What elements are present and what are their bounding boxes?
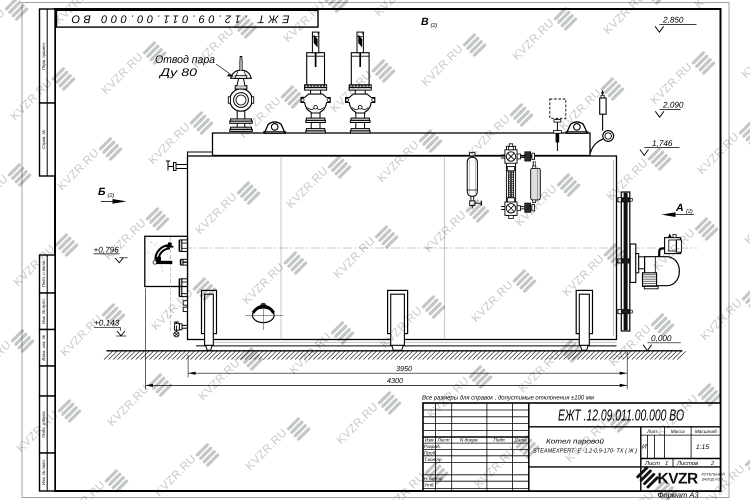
svg-text:Взам. инв. №: Взам. инв. № — [41, 334, 46, 360]
svg-text:3950: 3950 — [396, 364, 412, 373]
svg-text:Инв. № дубл.: Инв. № дубл. — [41, 298, 46, 324]
svg-text:1: 1 — [665, 461, 668, 467]
svg-text:Инв. № подл.: Инв. № подл. — [41, 459, 46, 485]
svg-text:Справ. №: Справ. № — [41, 130, 46, 149]
svg-text:1:15: 1:15 — [696, 444, 709, 451]
svg-text:2,090: 2,090 — [662, 101, 684, 110]
svg-text:И: И — [642, 444, 647, 451]
svg-text:Утб.: Утб. — [424, 482, 435, 487]
svg-text:(2): (2) — [431, 23, 438, 29]
svg-text:Масштаб: Масштаб — [695, 429, 717, 434]
svg-text:1,746: 1,746 — [652, 139, 673, 148]
svg-text:КОТЕЛЬНЫЙ: КОТЕЛЬНЫЙ — [702, 472, 726, 477]
svg-text:N докум.: N докум. — [460, 437, 479, 442]
svg-text:Изм: Изм — [425, 437, 434, 442]
svg-text:Масса: Масса — [671, 429, 685, 434]
svg-text:Перв. примен.: Перв. примен. — [41, 42, 46, 70]
svg-text:2,850: 2,850 — [662, 16, 684, 25]
svg-text:Проб.: Проб. — [424, 450, 437, 455]
svg-text:4300: 4300 — [387, 376, 403, 385]
svg-text:Б: Б — [98, 186, 106, 198]
svg-text:Разраб.: Разраб. — [424, 444, 441, 449]
svg-text:Лист: Лист — [644, 461, 660, 467]
svg-text:ЗАВОД РЭП: ЗАВОД РЭП — [702, 478, 723, 482]
svg-text:Ду 80: Ду 80 — [157, 67, 198, 79]
svg-text:(2): (2) — [108, 193, 115, 199]
svg-text:(2): (2) — [686, 209, 693, 215]
svg-text:Листов: Листов — [676, 461, 698, 467]
svg-text:Т.контр: Т.контр — [424, 457, 442, 462]
svg-text:А: А — [675, 202, 684, 214]
svg-text:В: В — [421, 16, 429, 28]
svg-text:Лист: Лист — [436, 437, 449, 442]
svg-text:Подп.: Подп. — [493, 437, 505, 442]
